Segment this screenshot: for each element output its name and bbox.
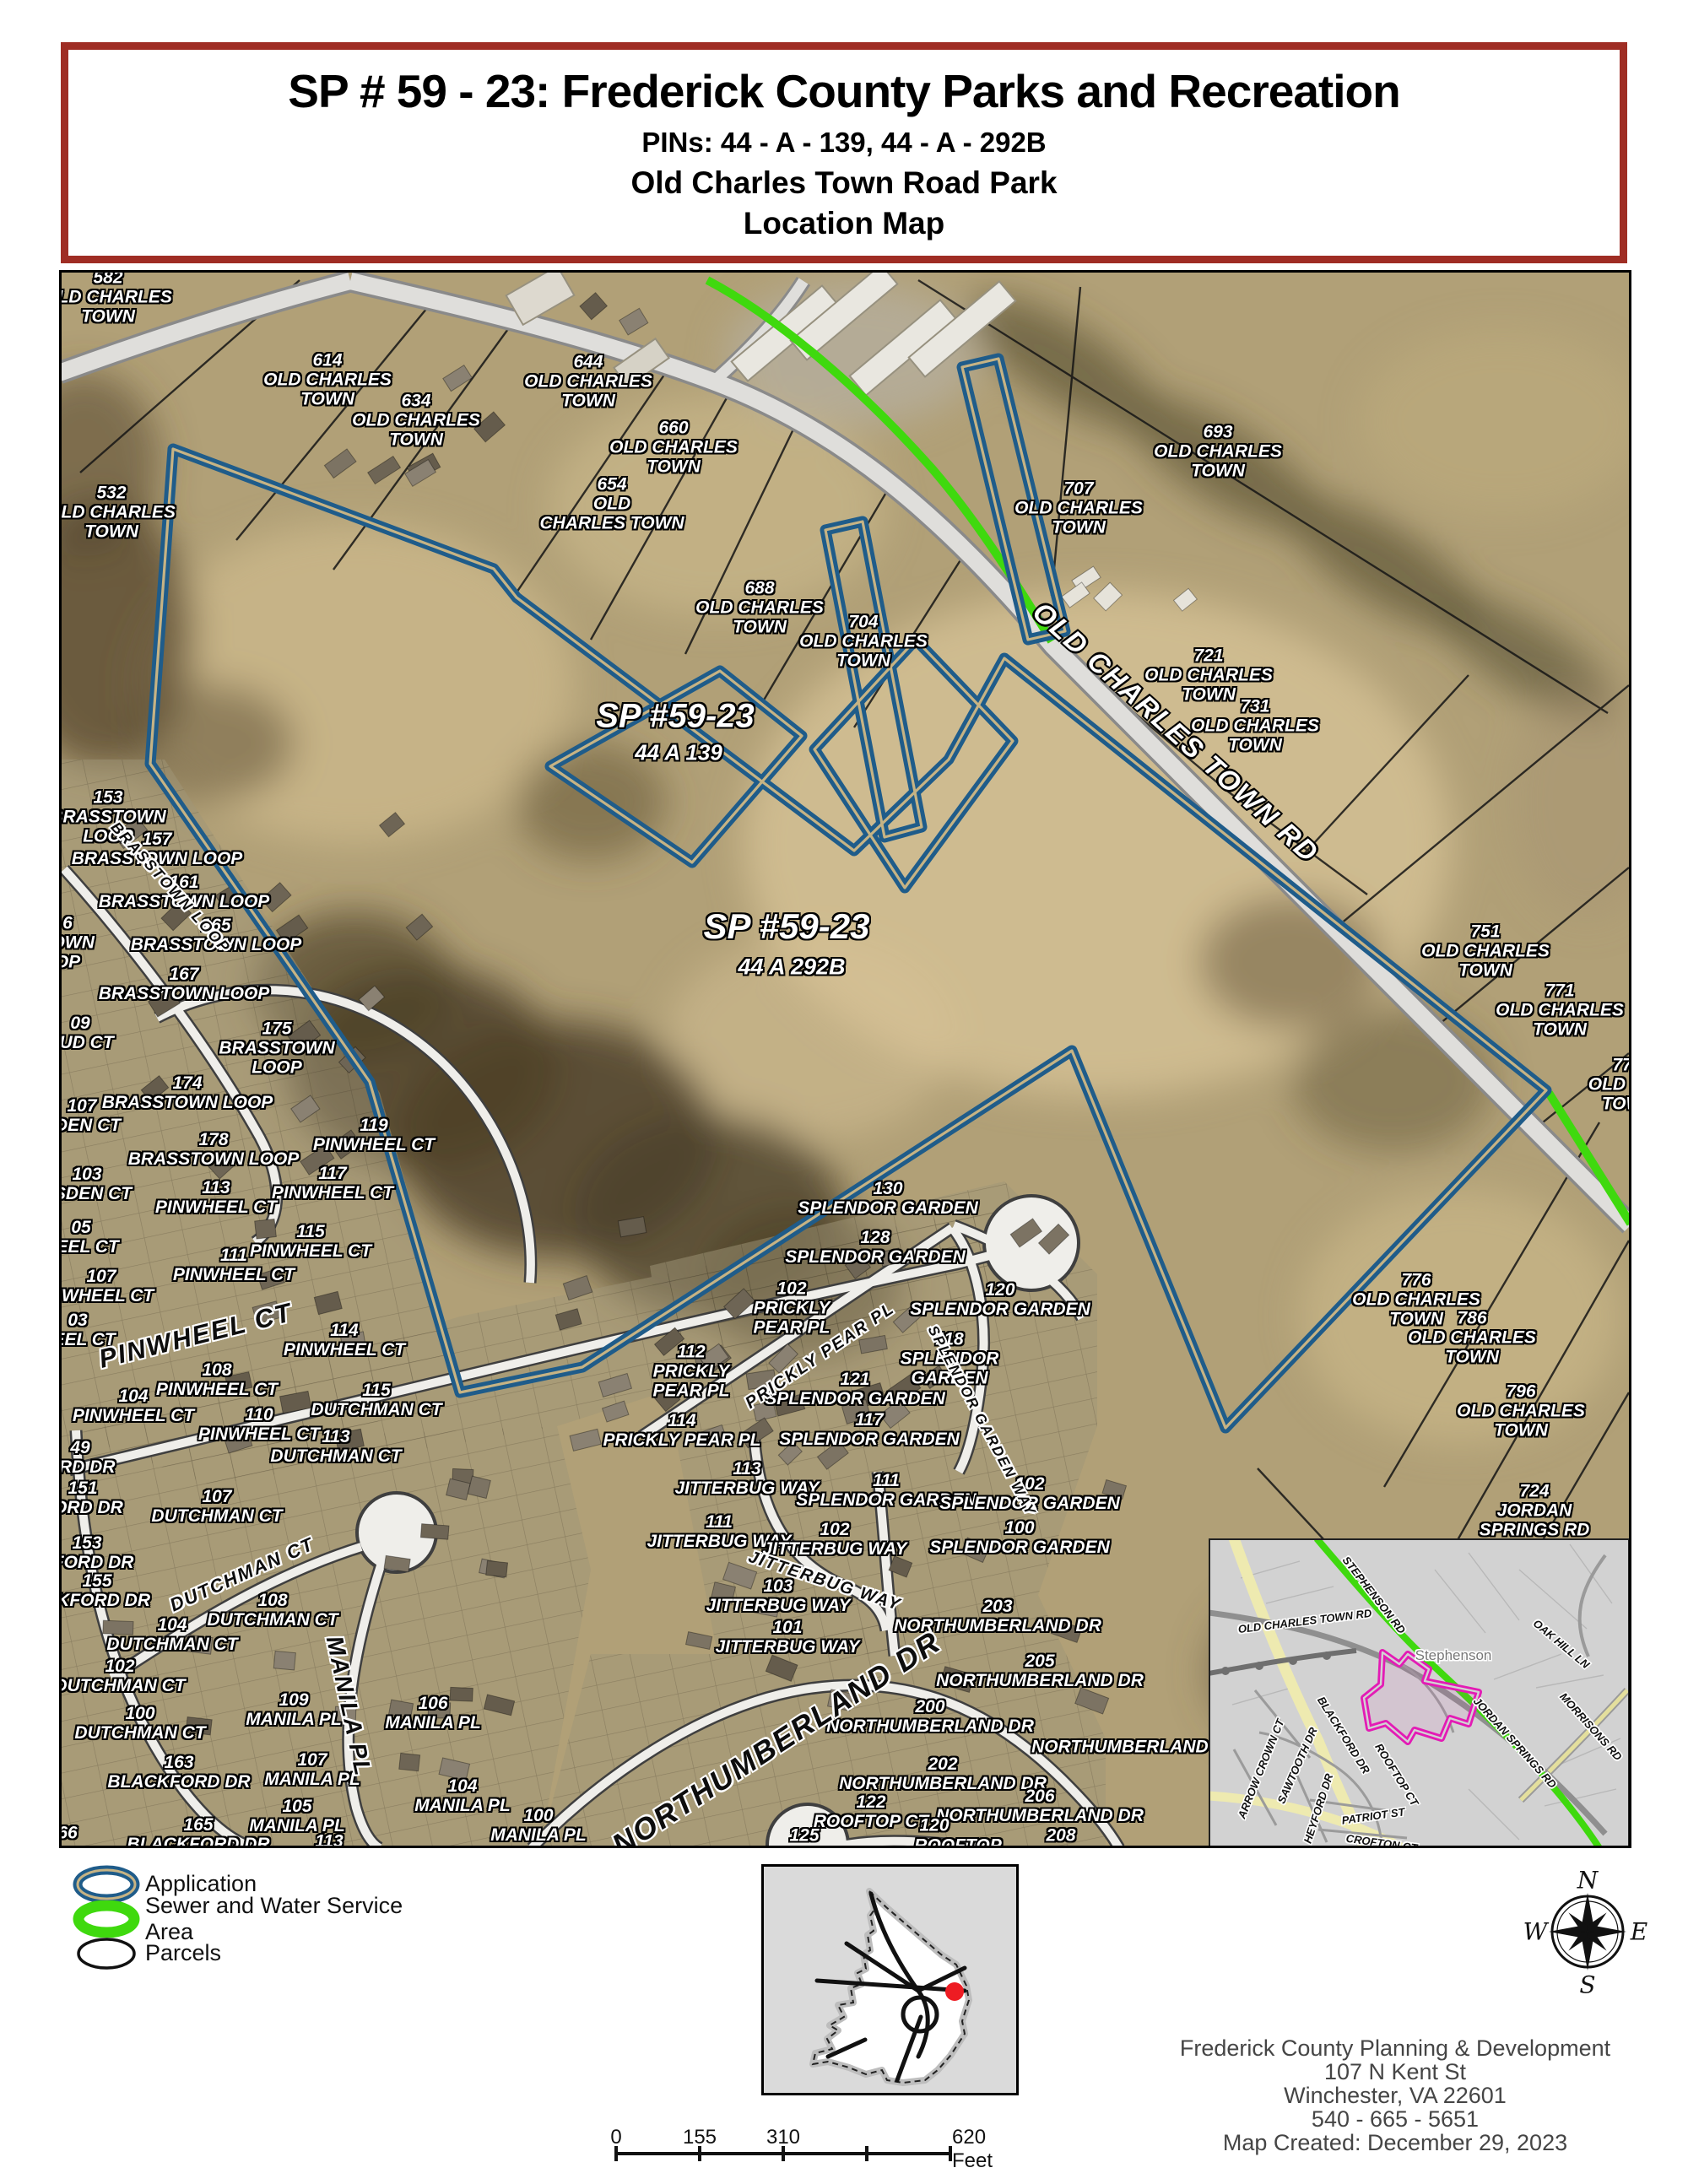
parcel-label: 102PRICKLYPEAR PL [753, 1279, 830, 1337]
parcel-label: 114PRICKLY PEAR PL [603, 1411, 760, 1450]
compass-west-label: W [1523, 1918, 1548, 1946]
credit-city: Winchester, VA 22601 [1142, 2084, 1648, 2107]
inset-street-label: ROOFTOP CT [1372, 1741, 1420, 1808]
parcel-label: 167BRASSTOWN LOOP [99, 965, 270, 1003]
parcel-label: 532OLD CHARLESTOWN [59, 483, 176, 541]
scale-tick-0: 0 [610, 2126, 621, 2149]
parcel-label: 100SPLENDOR GARDEN [929, 1518, 1110, 1557]
credit-date: Map Created: December 29, 2023 [1142, 2132, 1648, 2154]
sp-application-label: 44 A 292B [738, 954, 845, 981]
parcel-label: 724JORDANSPRINGS RD [1480, 1481, 1590, 1539]
parcel-label: 106MANILA PL [385, 1694, 481, 1733]
parcel-label: 09BUD CT [59, 1014, 114, 1052]
parcel-label: 205NORTHUMBERLAND DR [936, 1652, 1144, 1690]
parcel-label: 163BLACKFORD DR [107, 1753, 250, 1792]
scale-tick-310: 310 [766, 2126, 800, 2149]
parcel-label: 751OLD CHARLESTOWN [1421, 922, 1550, 980]
parcel-label: 704OLD CHARLESTOWN [799, 612, 928, 670]
parcel-label: 103ESDEN CT [59, 1165, 132, 1203]
parcel-label: 114PINWHEEL CT [284, 1321, 405, 1360]
parcel-label: 786OLD CHARLESTOWN [1408, 1308, 1536, 1366]
parcel-label: 100MANILA PL [490, 1806, 587, 1845]
compass-south-label: S [1579, 1971, 1595, 1999]
parcel-label: 165BLACKFORD DR [127, 1815, 269, 1848]
park-name: Old Charles Town Road Park [630, 165, 1057, 201]
parcel-label: 128SPLENDOR GARDEN [785, 1228, 966, 1267]
sp-application-label: SP #59-23 [704, 906, 870, 947]
parcel-label: 113 [315, 1831, 343, 1848]
inset-street-label: JORDAN SPRINGS RD [1471, 1695, 1559, 1791]
parcel-label: 175BRASSTOWNLOOP [219, 1019, 334, 1077]
title-block: SP # 59 - 23: Frederick County Parks and… [61, 42, 1627, 263]
county-locator-map [761, 1864, 1019, 2095]
parcel-label: 101JITTERBUG WAY [715, 1618, 859, 1657]
parcel-label: 771OLD CHARLESTOWN [1496, 981, 1624, 1039]
parcel-label: 120SPLENDOR GARDEN [910, 1280, 1090, 1319]
parcel-label: 721OLD CHARLESTOWN [1144, 646, 1273, 704]
parcel-label: 113DUTCHMAN CT [270, 1427, 401, 1466]
parcel-label: 707OLD CHARLESTOWN [1014, 478, 1143, 537]
parcel-label: 130SPLENDOR GARDEN [798, 1179, 978, 1218]
inset-overview-map: OLD CHARLES TOWN RDSTEPHENSON RDStephens… [1209, 1538, 1630, 1848]
legend-item-sewer: Sewer and Water Service Area [68, 1901, 456, 1936]
inset-street-label: OLD CHARLES TOWN RD [1237, 1607, 1372, 1635]
compass-east-label: E [1631, 1918, 1647, 1946]
parcel-label: 112PRICKLYPEAR PL [652, 1342, 729, 1400]
application-symbol-icon [68, 1865, 145, 1904]
aerial-location-map: 582OLD CHARLESTOWN614OLD CHARLESTOWN634O… [59, 270, 1631, 1848]
parcel-label: 77OLD CHTOW [1588, 1055, 1631, 1113]
parcel-label: 119PINWHEEL CT [313, 1116, 435, 1154]
parcel-label: 582OLD CHARLESTOWN [59, 270, 172, 327]
map-type-label: Location Map [744, 206, 944, 241]
inset-label-layer: OLD CHARLES TOWN RDSTEPHENSON RDStephens… [1209, 1538, 1630, 1848]
parcel-label: 115DUTCHMAN CT [311, 1381, 441, 1419]
parcel-label: 102JITTERBUG WAY [762, 1520, 906, 1559]
scale-tick-155: 155 [683, 2126, 717, 2149]
parcel-label: 634OLD CHARLESTOWN [352, 391, 480, 449]
parcel-label: 49ORD DR [59, 1438, 115, 1477]
parcel-label: 125 [789, 1825, 819, 1845]
parcel-label: 120 [919, 1815, 949, 1835]
parcel-label: 109MANILA PL [246, 1690, 342, 1729]
parcel-label: 104PINWHEEL CT [73, 1387, 194, 1425]
inset-street-label: ARROW CROWN CT [1236, 1717, 1287, 1820]
legend-label: Parcels [145, 1940, 221, 1966]
credit-phone: 540 - 665 - 5651 [1142, 2108, 1648, 2131]
compass-north-label: N [1577, 1867, 1599, 1895]
parcel-label: 151FORD DR [59, 1479, 123, 1517]
inset-street-label: HEYFORD DR [1301, 1772, 1336, 1845]
scale-bar-graphic [591, 2114, 1013, 2165]
credit-address: 107 N Kent St [1142, 2061, 1648, 2084]
parcel-label: 6TOWNOP [59, 913, 95, 971]
parcel-label: 100DUTCHMAN CT [74, 1704, 205, 1743]
sp-application-label: 44 A 139 [635, 740, 722, 766]
inset-street-label: MORRISONS RD [1557, 1690, 1625, 1763]
parcel-label: 117SPLENDOR GARDEN [779, 1410, 960, 1449]
parcel-label: 104DUTCHMAN CT [106, 1615, 237, 1654]
inset-street-label: BLACKFORD DR [1315, 1695, 1372, 1776]
parcel-label: 05HEEL CT [59, 1218, 119, 1257]
parcel-label: 66 [59, 1823, 78, 1842]
legend: Application Sewer and Water Service Area… [68, 1867, 456, 1970]
parcel-label: 693OLD CHARLESTOWN [1154, 422, 1282, 480]
scale-tick-620: 620 Feet [952, 2126, 993, 2173]
parcel-label: 111PINWHEEL CT [173, 1246, 295, 1284]
sp-application-label: SP #59-23 [596, 698, 755, 736]
parcel-label: 644OLD CHARLESTOWN [524, 352, 652, 410]
parcel-label: 155CKFORD DR [59, 1571, 150, 1610]
parcel-label: 174BRASSTOWN LOOP [102, 1073, 273, 1112]
inset-street-label: OAK HILL LN [1531, 1617, 1593, 1671]
parcel-label: 796OLD CHARLESTOWN [1457, 1381, 1585, 1440]
compass-rose: N E S W [1526, 1870, 1649, 1993]
parcel-label: 208 [1046, 1825, 1075, 1845]
parcel-label: 107SDEN CT [59, 1096, 121, 1135]
parcel-label: 206NORTHUMBERLAND DR [936, 1787, 1144, 1825]
credit-agency: Frederick County Planning & Development [1142, 2037, 1648, 2060]
legend-label: Sewer and Water Service Area [145, 1893, 456, 1945]
pin-numbers: PINs: 44 - A - 139, 44 - A - 292B [641, 127, 1046, 159]
scale-bar: 0 155 310 620 Feet [591, 2114, 1013, 2165]
parcel-label: 113PINWHEEL CT [155, 1178, 277, 1217]
parcel-label: 102DUTCHMAN CT [59, 1657, 186, 1695]
location-marker-dot [945, 1982, 964, 2001]
inset-street-label: Stephenson [1415, 1647, 1492, 1664]
parcels-symbol-icon [68, 1935, 145, 1972]
parcel-label: 153KFORD DR [59, 1533, 133, 1572]
inset-street-label: PATRIOT ST [1341, 1805, 1406, 1826]
map-credits: Frederick County Planning & Development … [1142, 2037, 1648, 2155]
location-map-page: SP # 59 - 23: Frederick County Parks and… [0, 0, 1688, 2184]
sewer-symbol-icon [68, 1900, 145, 1938]
page-title: SP # 59 - 23: Frederick County Parks and… [288, 64, 1399, 118]
parcel-label: 122ROOFTOP CT [814, 1792, 929, 1831]
parcel-label: 107DUTCHMAN CT [151, 1487, 282, 1526]
parcel-label: ROOFTOP [914, 1835, 1001, 1848]
inset-street-label: SAWTOOTH DR [1274, 1726, 1319, 1806]
parcel-label: 654OLDCHARLES TOWN [539, 474, 684, 532]
inset-street-label: STEPHENSON RD [1340, 1554, 1409, 1635]
parcel-label: 660OLD CHARLESTOWN [609, 418, 738, 476]
parcel-label: 107NWHEEL CT [59, 1267, 154, 1306]
inset-street-label: CROFTON CT [1345, 1832, 1418, 1848]
parcel-label: 117PINWHEEL CT [272, 1164, 393, 1203]
